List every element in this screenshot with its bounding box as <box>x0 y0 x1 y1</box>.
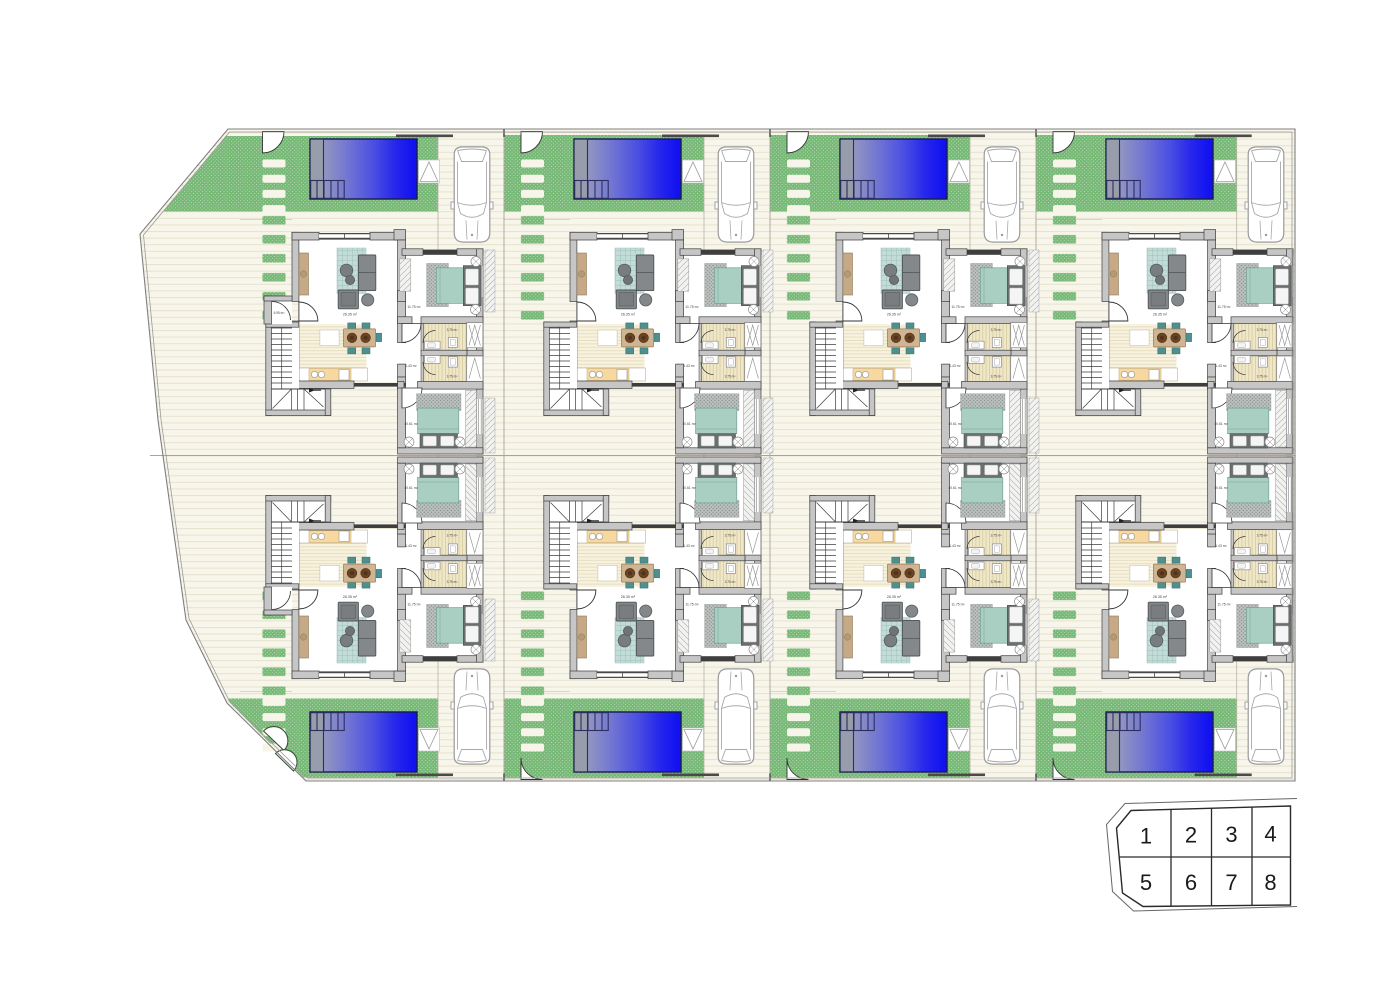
svg-text:26.35 m²: 26.35 m² <box>621 595 636 599</box>
svg-text:1: 1 <box>1140 823 1152 848</box>
svg-text:10.61 m²: 10.61 m² <box>948 422 962 426</box>
svg-text:3.75 m²: 3.75 m² <box>725 580 736 584</box>
svg-text:8: 8 <box>1264 870 1276 895</box>
svg-text:11.75 m²: 11.75 m² <box>407 602 421 606</box>
svg-text:26.35 m²: 26.35 m² <box>1153 313 1168 317</box>
svg-text:10.61 m²: 10.61 m² <box>682 422 696 426</box>
svg-text:26.35 m²: 26.35 m² <box>343 595 358 599</box>
svg-text:3.75 m²: 3.75 m² <box>725 533 736 537</box>
svg-text:3.75 m²: 3.75 m² <box>991 533 1002 537</box>
svg-text:1.43 m²: 1.43 m² <box>1215 364 1227 368</box>
svg-text:11.75 m²: 11.75 m² <box>951 602 965 606</box>
svg-text:3.75 m²: 3.75 m² <box>1257 374 1268 378</box>
svg-text:10.61 m²: 10.61 m² <box>682 486 696 490</box>
svg-text:1.43 m²: 1.43 m² <box>405 364 417 368</box>
svg-text:4: 4 <box>1264 821 1276 846</box>
svg-text:10.61 m²: 10.61 m² <box>404 422 418 426</box>
svg-text:1.43 m²: 1.43 m² <box>683 544 695 548</box>
svg-text:10.61 m²: 10.61 m² <box>948 486 962 490</box>
svg-text:3.75 m²: 3.75 m² <box>447 328 458 332</box>
svg-text:3.75 m²: 3.75 m² <box>447 580 458 584</box>
svg-text:3: 3 <box>1225 822 1237 847</box>
svg-text:1.43 m²: 1.43 m² <box>405 544 417 548</box>
svg-text:10.61 m²: 10.61 m² <box>404 486 418 490</box>
svg-text:5: 5 <box>1140 870 1152 895</box>
svg-text:1.43 m²: 1.43 m² <box>949 544 961 548</box>
svg-text:3.75 m²: 3.75 m² <box>447 533 458 537</box>
svg-text:26.35 m²: 26.35 m² <box>1153 595 1168 599</box>
svg-text:11.75 m²: 11.75 m² <box>1217 305 1231 309</box>
svg-text:11.75 m²: 11.75 m² <box>685 305 699 309</box>
svg-text:11.75 m²: 11.75 m² <box>407 305 421 309</box>
svg-text:3.75 m²: 3.75 m² <box>1257 328 1268 332</box>
svg-text:26.35 m²: 26.35 m² <box>343 313 358 317</box>
svg-text:11.75 m²: 11.75 m² <box>685 602 699 606</box>
svg-text:6: 6 <box>1185 870 1197 895</box>
svg-text:3.75 m²: 3.75 m² <box>991 580 1002 584</box>
svg-text:3.75 m²: 3.75 m² <box>447 374 458 378</box>
svg-text:26.35 m²: 26.35 m² <box>887 313 902 317</box>
svg-text:1.43 m²: 1.43 m² <box>949 364 961 368</box>
svg-text:26.35 m²: 26.35 m² <box>887 595 902 599</box>
svg-text:1.43 m²: 1.43 m² <box>683 364 695 368</box>
svg-text:11.75 m²: 11.75 m² <box>1217 602 1231 606</box>
svg-text:26.35 m²: 26.35 m² <box>621 313 636 317</box>
svg-text:3.75 m²: 3.75 m² <box>1257 533 1268 537</box>
svg-text:11.75 m²: 11.75 m² <box>951 305 965 309</box>
svg-text:3.75 m²: 3.75 m² <box>725 374 736 378</box>
svg-text:3.75 m²: 3.75 m² <box>1257 580 1268 584</box>
svg-text:1.43 m²: 1.43 m² <box>1215 544 1227 548</box>
svg-text:6.95 m²: 6.95 m² <box>274 311 285 315</box>
svg-text:3.75 m²: 3.75 m² <box>725 328 736 332</box>
svg-text:10.61 m²: 10.61 m² <box>1214 486 1228 490</box>
svg-text:7: 7 <box>1225 870 1237 895</box>
svg-text:10.61 m²: 10.61 m² <box>1214 422 1228 426</box>
svg-text:2: 2 <box>1185 822 1197 847</box>
svg-text:3.75 m²: 3.75 m² <box>991 328 1002 332</box>
svg-text:3.75 m²: 3.75 m² <box>991 374 1002 378</box>
